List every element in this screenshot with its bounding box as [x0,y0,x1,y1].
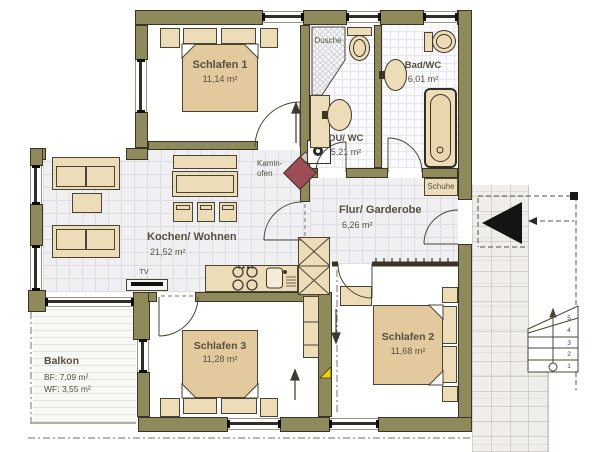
room-label-kochen: Kochen/ Wohnen [147,231,277,244]
path-arrow-icon [528,217,537,225]
label-tv: TV [133,268,155,277]
room-area-duwc: 5,21 m² [314,147,378,157]
door-arcs [159,102,458,336]
room-area-badwc: 6,01 m² [392,74,454,84]
label-kaminofen-2: ofen [257,169,291,178]
room-area-schlafen3: 11,28 m² [182,354,258,364]
room-area-balkon-bf: BF: 7,09 m² [44,373,124,383]
room-area-flur: 6,26 m² [342,220,402,230]
room-label-schlafen2: Schlafen 2 [372,331,444,343]
room-label-schlafen1: Schlafen 1 [175,59,265,72]
hob-detail [233,266,257,290]
label-dusche: Dusche [310,36,346,45]
room-label-duwc: DU/ WC [314,134,378,145]
room-area-schlafen1: 11,14 m² [175,74,265,84]
room-area-balkon-wf: WF: 3,55 m² [44,385,124,395]
tub-drain [437,147,443,153]
room-label-flur: Flur/ Garderobe [339,204,455,217]
stair-step-2: 2 [563,351,575,358]
coatrack-wall [332,258,458,264]
room-label-schlafen3: Schlafen 3 [182,340,258,352]
label-kaminofen-1: Kamin- [257,159,291,168]
yellow-marker [320,367,331,378]
stair-step-3: 3 [563,340,575,347]
room-label-badwc: Bad/WC [392,61,454,72]
sink-detail [267,268,297,288]
room-area-schlafen2: 11,68 m² [372,346,444,356]
stair-step-4: 4 [563,327,575,334]
site-marker [570,192,578,200]
label-schuhe: Schuhe [424,182,458,191]
stair-step-1: 1 [563,363,575,370]
room-area-kochen: 21,52 m² [150,247,220,257]
cabinet-detail [298,237,330,345]
stair-step-5: 5 [563,315,575,322]
entrance-arrow-icon [482,202,522,244]
room-label-balkon: Balkon [44,355,114,367]
floor-plan: Schlafen 1 11,14 m² Dusche DU/ WC 5,21 m… [0,0,600,452]
